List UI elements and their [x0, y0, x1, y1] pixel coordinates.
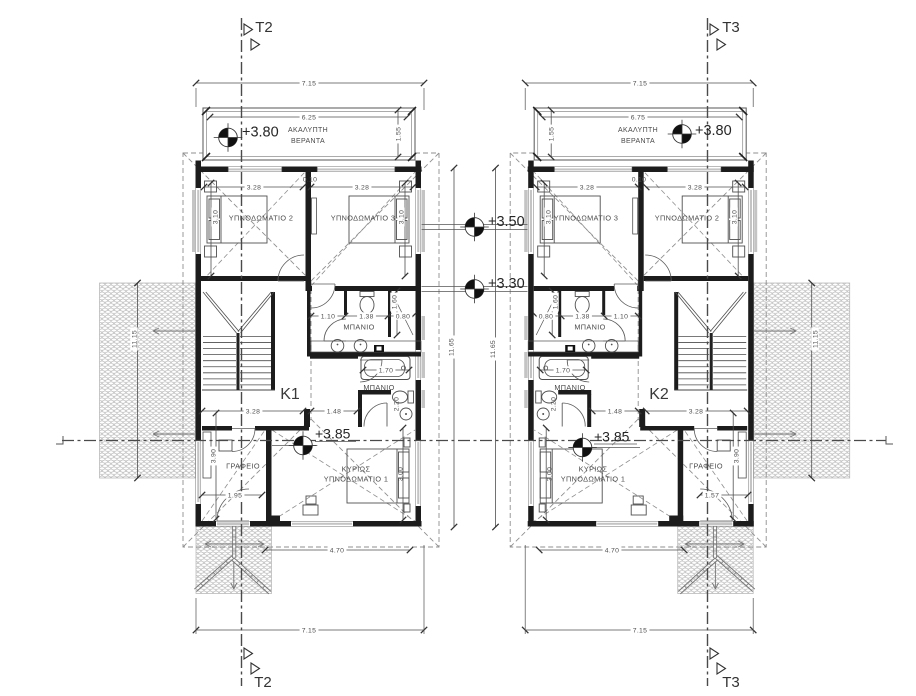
svg-text:3.28: 3.28 [689, 408, 703, 415]
svg-text:1.60: 1.60 [552, 295, 559, 309]
svg-text:0.10: 0.10 [303, 176, 317, 183]
svg-text:K1: K1 [280, 386, 300, 403]
svg-text:ΓΡΑΦΕΙΟ: ΓΡΑΦΕΙΟ [226, 462, 260, 471]
svg-text:ΥΠΝΟΔΩΜΑΤΙΟ 3: ΥΠΝΟΔΩΜΑΤΙΟ 3 [331, 214, 395, 223]
svg-text:ΜΠΑΝΙΟ: ΜΠΑΝΙΟ [363, 383, 394, 392]
svg-text:3.28: 3.28 [355, 184, 369, 191]
svg-text:1.38: 1.38 [359, 313, 373, 320]
svg-text:6.25: 6.25 [302, 114, 316, 121]
svg-text:ΚΥΡΙΩΣ: ΚΥΡΙΩΣ [342, 465, 371, 474]
svg-text:7.15: 7.15 [302, 627, 316, 634]
svg-text:ΓΡΑΦΕΙΟ: ΓΡΑΦΕΙΟ [689, 462, 723, 471]
svg-text:1.70: 1.70 [379, 367, 393, 374]
svg-text:ΥΠΝΟΔΩΜΑΤΙΟ 2: ΥΠΝΟΔΩΜΑΤΙΟ 2 [655, 214, 719, 223]
svg-text:0.80: 0.80 [539, 313, 553, 320]
svg-text:3.28: 3.28 [247, 184, 261, 191]
svg-text:+3.30: +3.30 [488, 276, 525, 292]
svg-text:3.10: 3.10 [398, 210, 405, 224]
svg-text:7.15: 7.15 [633, 80, 647, 87]
svg-text:T2: T2 [255, 19, 273, 36]
svg-text:ΥΠΝΟΔΩΜΑΤΙΟ 1: ΥΠΝΟΔΩΜΑΤΙΟ 1 [324, 475, 388, 484]
svg-text:3.10: 3.10 [545, 210, 552, 224]
svg-text:1.55: 1.55 [548, 127, 555, 141]
svg-text:+3.80: +3.80 [242, 125, 279, 141]
svg-text:3.28: 3.28 [246, 408, 260, 415]
svg-text:1.48: 1.48 [608, 408, 622, 415]
svg-text:ΑΚΑΛΥΠΤΗ: ΑΚΑΛΥΠΤΗ [288, 127, 328, 134]
svg-text:3.10: 3.10 [212, 210, 219, 224]
svg-text:T3: T3 [722, 19, 740, 36]
svg-text:0.10: 0.10 [632, 176, 646, 183]
svg-text:3.00: 3.00 [546, 467, 553, 481]
svg-text:3.10: 3.10 [731, 210, 738, 224]
svg-text:11.15: 11.15 [131, 330, 138, 348]
svg-text:1.55: 1.55 [395, 127, 402, 141]
svg-text:1.48: 1.48 [327, 408, 341, 415]
svg-text:1.10: 1.10 [614, 313, 628, 320]
svg-text:K2: K2 [649, 386, 669, 403]
svg-text:ΥΠΝΟΔΩΜΑΤΙΟ 2: ΥΠΝΟΔΩΜΑΤΙΟ 2 [229, 214, 293, 223]
svg-text:+3.80: +3.80 [695, 123, 732, 139]
svg-text:3.90: 3.90 [733, 449, 740, 463]
svg-text:ΑΚΑΛΥΠΤΗ: ΑΚΑΛΥΠΤΗ [618, 127, 658, 134]
svg-text:1.57: 1.57 [705, 492, 719, 499]
svg-text:1.70: 1.70 [556, 367, 570, 374]
svg-text:4.70: 4.70 [605, 547, 619, 554]
svg-text:11.15: 11.15 [812, 330, 819, 348]
svg-text:3.90: 3.90 [210, 449, 217, 463]
svg-text:11.65: 11.65 [448, 338, 455, 356]
svg-text:ΜΠΑΝΙΟ: ΜΠΑΝΙΟ [574, 323, 605, 332]
svg-text:T2: T2 [254, 674, 272, 691]
svg-text:1.10: 1.10 [321, 313, 335, 320]
svg-text:ΒΕΡΑΝΤΑ: ΒΕΡΑΝΤΑ [291, 138, 325, 145]
svg-text:ΚΥΡΙΩΣ: ΚΥΡΙΩΣ [579, 465, 608, 474]
svg-text:4.70: 4.70 [330, 547, 344, 554]
svg-text:1.38: 1.38 [575, 313, 589, 320]
svg-text:+3.50: +3.50 [488, 214, 525, 230]
svg-text:ΜΠΑΝΙΟ: ΜΠΑΝΙΟ [343, 323, 374, 332]
svg-text:ΥΠΝΟΔΩΜΑΤΙΟ 1: ΥΠΝΟΔΩΜΑΤΙΟ 1 [561, 475, 625, 484]
svg-text:2.20: 2.20 [393, 397, 400, 411]
svg-text:ΒΕΡΑΝΤΑ: ΒΕΡΑΝΤΑ [621, 138, 655, 145]
svg-text:0.80: 0.80 [396, 313, 410, 320]
svg-text:3.00: 3.00 [397, 467, 404, 481]
svg-text:ΜΠΑΝΙΟ: ΜΠΑΝΙΟ [554, 383, 585, 392]
svg-text:7.15: 7.15 [302, 80, 316, 87]
svg-text:+3.85: +3.85 [315, 426, 351, 442]
svg-text:1.95: 1.95 [228, 492, 242, 499]
svg-text:11.65: 11.65 [490, 340, 497, 358]
svg-text:6.75: 6.75 [631, 114, 645, 121]
svg-text:7.15: 7.15 [633, 627, 647, 634]
svg-text:ΥΠΝΟΔΩΜΑΤΙΟ 3: ΥΠΝΟΔΩΜΑΤΙΟ 3 [554, 214, 618, 223]
svg-text:3.28: 3.28 [580, 184, 594, 191]
svg-text:+3.85: +3.85 [594, 429, 630, 445]
svg-text:T3: T3 [722, 674, 740, 691]
svg-text:1.60: 1.60 [391, 295, 398, 309]
svg-text:3.28: 3.28 [688, 184, 702, 191]
svg-text:2.20: 2.20 [550, 397, 557, 411]
